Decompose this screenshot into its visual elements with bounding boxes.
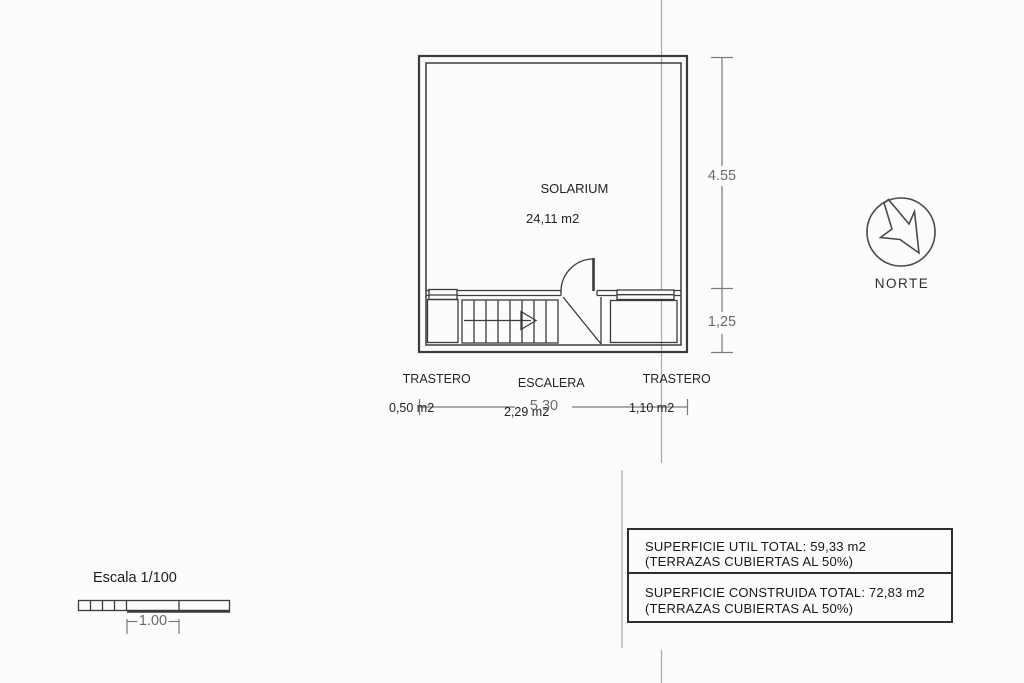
scale-label: Escala 1/100 [93,570,177,586]
room-name: ESCALERA [518,376,585,390]
left-storage [428,290,459,343]
under-stair-triangle [563,297,601,344]
summary-row-construida: SUPERFICIE CONSTRUIDA TOTAL: 72,83 m2 (T… [629,574,951,621]
room-name: TRASTERO [403,372,471,386]
dimension-lower-height: 1,25 [696,314,748,330]
north-label: NORTE [862,276,942,291]
solarium-area: 24,11 m2 [526,211,608,226]
dimension-upper-height: 4.55 [696,168,748,184]
room-label-trastero-left: TRASTERO 0,50 m2 [389,357,471,444]
north-indicator [867,198,935,266]
room-area: 1,10 m2 [629,401,711,416]
summary-construida-total: SUPERFICIE CONSTRUIDA TOTAL: 72,83 m2 [645,585,943,601]
room-name: TRASTERO [643,372,711,386]
staircase [462,300,558,343]
summary-row-util: SUPERFICIE UTIL TOTAL: 59,33 m2 (TERRAZA… [629,530,951,574]
north-circle [867,198,935,266]
summary-util-total: SUPERFICIE UTIL TOTAL: 59,33 m2 [645,539,943,555]
scale-unit-dimension: 1.00 [127,613,179,629]
solarium-name: SOLARIUM [540,181,608,196]
north-arrow-icon [881,200,920,254]
summary-construida-note: (TERRAZAS CUBIERTAS AL 50%) [645,601,943,617]
room-area: 0,50 m2 [389,401,471,416]
summary-util-note: (TERRAZAS CUBIERTAS AL 50%) [645,554,943,570]
room-label-trastero-right: TRASTERO 1,10 m2 [629,357,711,444]
door-swing [561,258,594,292]
solarium-label: SOLARIUM 24,11 m2 [526,166,608,256]
right-storage [611,290,678,343]
stair-direction-arrow-icon [464,312,536,330]
area-summary-box: SUPERFICIE UTIL TOTAL: 59,33 m2 (TERRAZA… [627,528,953,623]
dimension-total-width: 5.30 [518,398,570,414]
floorplan-page: SOLARIUM 24,11 m2 TRASTERO 0,50 m2 ESCAL… [0,0,1024,683]
